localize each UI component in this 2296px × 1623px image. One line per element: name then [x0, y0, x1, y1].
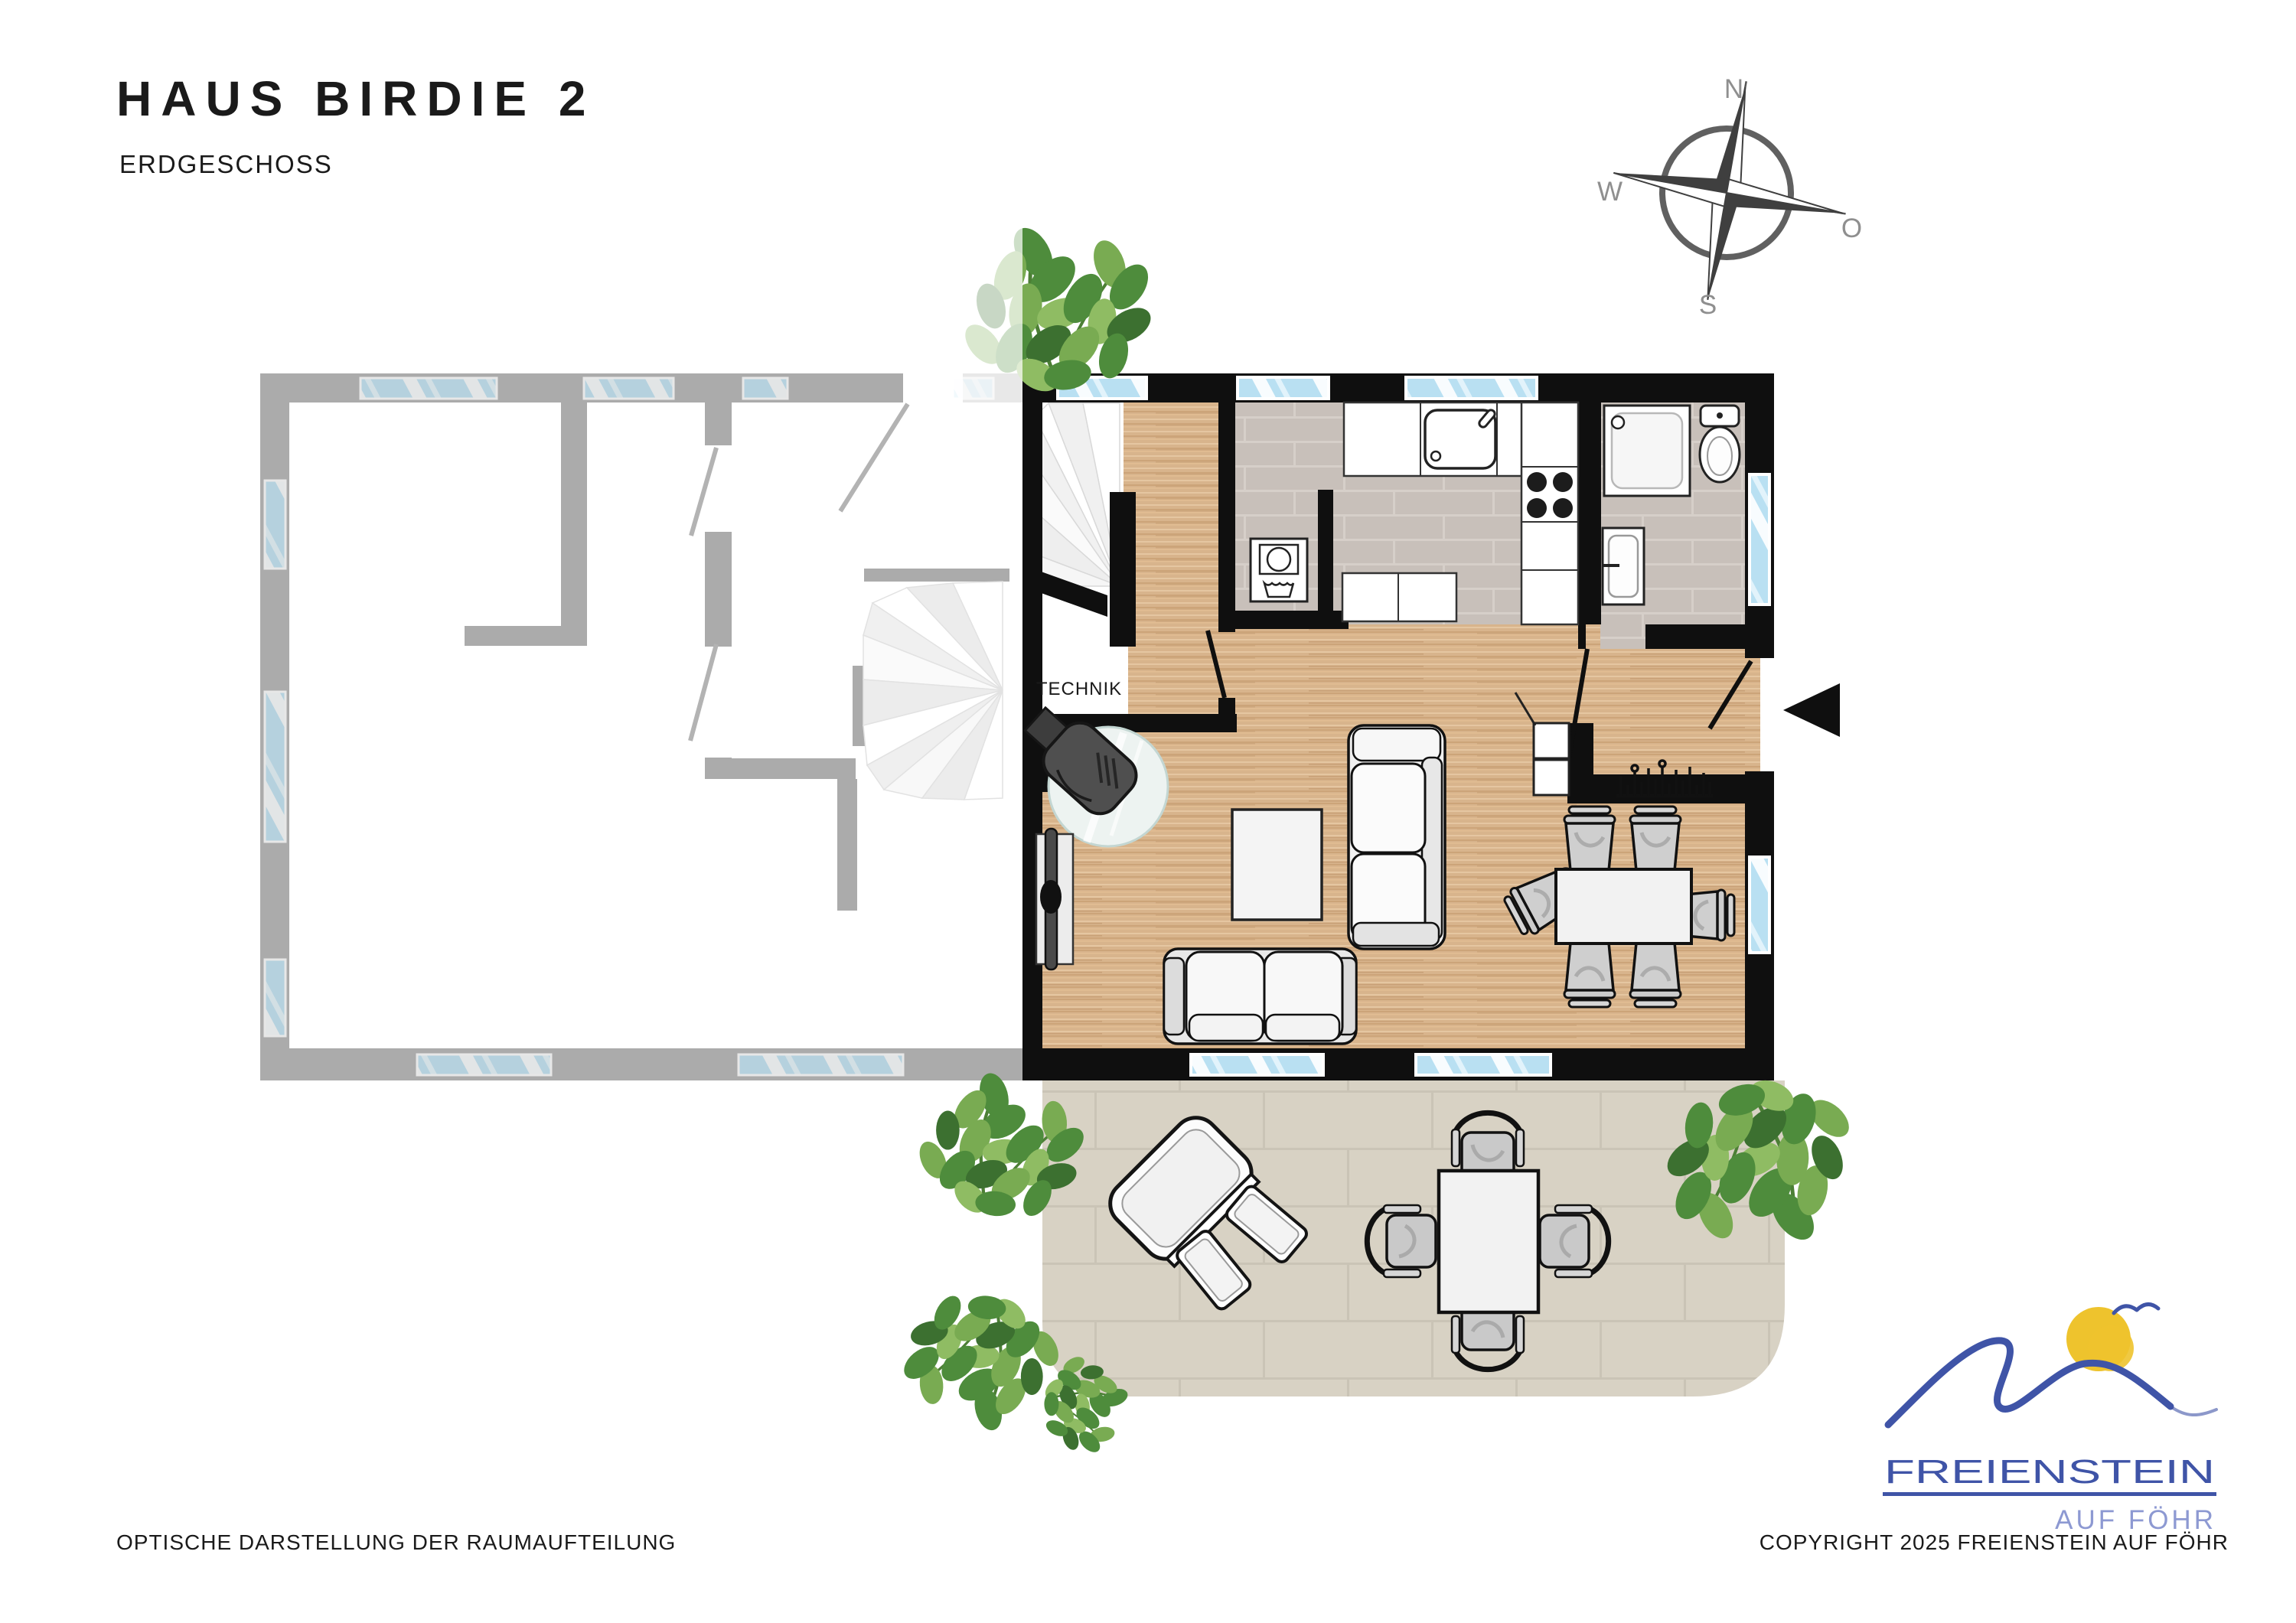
- logo-seagull-icon: [2114, 1304, 2158, 1313]
- compass-n-label: N: [1724, 74, 1744, 104]
- active-unit: TECHNIK: [1014, 373, 1840, 1080]
- copyright-text: COPYRIGHT 2025 FREIENSTEIN AUF FÖHR: [1760, 1530, 2229, 1555]
- stairs: [1035, 403, 1120, 586]
- tv-sideboard: [1036, 829, 1073, 970]
- outdoor-table: [1439, 1171, 1538, 1312]
- compass-w-label: W: [1597, 177, 1623, 207]
- toilet-icon: [1700, 406, 1740, 482]
- loveseat: [1164, 949, 1356, 1044]
- page-subtitle: ERDGESCHOSS: [119, 150, 333, 179]
- dining-table: [1556, 869, 1691, 943]
- floorplan-page: HAUS BIRDIE 2 ERDGESCHOSS: [0, 0, 2296, 1623]
- logo-brand-text: FREIENSTEIN: [1884, 1453, 2215, 1491]
- entrance-arrow-icon: [1783, 683, 1840, 737]
- disclaimer-text: OPTISCHE DARSTELLUNG DER RAUMAUFTEILUNG: [116, 1530, 676, 1555]
- terrace: [1042, 1080, 1785, 1396]
- washing-machine-icon: [1251, 539, 1307, 601]
- logo: FREIENSTEIN AUF FÖHR: [1883, 1304, 2216, 1535]
- compass-s-label: S: [1699, 290, 1717, 320]
- wardrobe: [1534, 723, 1569, 758]
- page-title: HAUS BIRDIE 2: [116, 70, 595, 127]
- neighbor-unit: [260, 373, 1022, 1080]
- compass-rose: N W O S: [1595, 61, 1866, 321]
- shower-icon: [1604, 406, 1690, 496]
- plant-fade-overlay: [941, 197, 1022, 406]
- neighbor-stairs: [863, 582, 1003, 800]
- compass-o-label: O: [1841, 213, 1863, 243]
- kitchen-island: [1342, 573, 1456, 621]
- washbasin-icon: [1603, 528, 1644, 605]
- floorplan-canvas: TECHNIK: [0, 0, 2296, 1623]
- coffee-table: [1232, 810, 1322, 920]
- room-label-technik: TECHNIK: [1036, 679, 1122, 699]
- sofa: [1349, 725, 1445, 949]
